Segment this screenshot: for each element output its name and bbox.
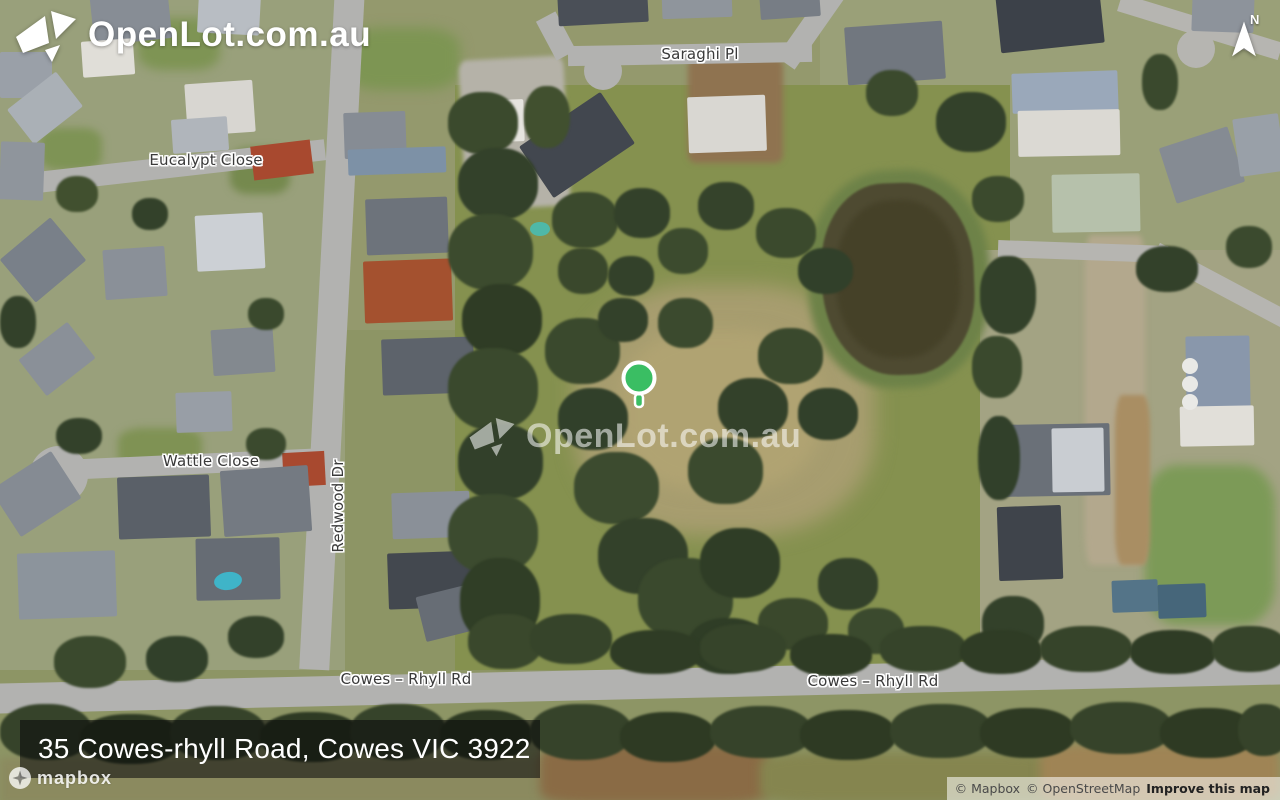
map-house bbox=[1011, 70, 1118, 114]
map-tree bbox=[658, 228, 708, 274]
map-house bbox=[1232, 113, 1280, 177]
map-tree bbox=[800, 710, 896, 760]
map-culdesac bbox=[1177, 30, 1215, 68]
map-tree bbox=[798, 248, 853, 294]
openlot-bird-icon bbox=[14, 6, 78, 64]
map-tree bbox=[960, 630, 1042, 674]
map-tree bbox=[530, 704, 632, 760]
map-tree bbox=[866, 70, 918, 116]
map-shed bbox=[997, 505, 1064, 581]
mapbox-logo[interactable]: mapbox bbox=[8, 766, 112, 790]
map-house bbox=[171, 116, 229, 154]
map-pool bbox=[530, 222, 550, 236]
mapbox-wordmark: mapbox bbox=[37, 768, 112, 789]
map-tree bbox=[530, 614, 612, 664]
map-tree bbox=[1142, 54, 1178, 110]
map-tree bbox=[710, 706, 812, 758]
map-house bbox=[662, 0, 733, 19]
map-building bbox=[1180, 405, 1255, 446]
map-tree bbox=[448, 92, 518, 154]
map-tree bbox=[700, 528, 780, 598]
address-text: 35 Cowes-rhyll Road, Cowes VIC 3922 bbox=[38, 733, 531, 765]
map-tree bbox=[558, 248, 608, 294]
map-house bbox=[1052, 173, 1141, 233]
map-house bbox=[210, 326, 275, 376]
map-tree bbox=[980, 256, 1036, 334]
attribution-bar: © Mapbox © OpenStreetMap Improve this ma… bbox=[947, 777, 1280, 800]
map-lawn bbox=[40, 128, 102, 170]
map-tree bbox=[56, 418, 102, 454]
map-house bbox=[220, 465, 312, 537]
map-tree bbox=[54, 636, 126, 688]
map-tree bbox=[1226, 226, 1272, 268]
map-tree bbox=[658, 298, 713, 348]
map-tank bbox=[1182, 394, 1198, 410]
map-tree bbox=[608, 256, 654, 296]
map-house bbox=[348, 146, 447, 175]
map-tree bbox=[790, 634, 872, 676]
map-tree bbox=[972, 336, 1022, 398]
map-dirt-track bbox=[1115, 395, 1150, 565]
map-tank bbox=[1182, 358, 1198, 374]
map-tree bbox=[1070, 702, 1172, 754]
map-tree bbox=[614, 188, 670, 238]
street-label-cowes-rhyll-east: Cowes – Rhyll Rd bbox=[807, 672, 938, 690]
map-house bbox=[17, 550, 117, 619]
street-label-redwood: Redwood Dr bbox=[329, 459, 347, 552]
map-house bbox=[0, 141, 45, 201]
map-culdesac bbox=[584, 52, 622, 90]
map-tree bbox=[0, 296, 36, 348]
map-tree bbox=[524, 86, 570, 148]
map-tree bbox=[758, 328, 823, 384]
openlot-bird-icon bbox=[468, 414, 516, 458]
mapbox-icon bbox=[8, 766, 32, 790]
satellite-map[interactable]: Saraghi Pl Eucalypt Close Wattle Close R… bbox=[0, 0, 1280, 800]
street-label-saraghi: Saraghi Pl bbox=[661, 45, 738, 63]
map-house bbox=[1051, 428, 1104, 493]
map-tree bbox=[132, 198, 168, 230]
map-tree bbox=[56, 176, 98, 212]
mapbox-copyright-link[interactable]: © Mapbox bbox=[955, 781, 1020, 796]
map-tree bbox=[880, 626, 966, 672]
map-shed bbox=[1157, 583, 1206, 619]
map-tree bbox=[228, 616, 284, 658]
map-tree bbox=[448, 214, 533, 290]
openlot-logo: OpenLot.com.au bbox=[14, 6, 371, 64]
property-pin-marker[interactable] bbox=[616, 358, 662, 416]
map-tree bbox=[1212, 626, 1280, 672]
map-tree bbox=[598, 298, 648, 342]
map-house bbox=[102, 246, 167, 300]
street-label-wattle: Wattle Close bbox=[163, 452, 259, 470]
map-tree bbox=[1136, 246, 1198, 292]
map-tree bbox=[798, 388, 858, 440]
map-tree bbox=[980, 708, 1076, 758]
osm-copyright-link[interactable]: © OpenStreetMap bbox=[1026, 781, 1140, 796]
openlot-logo-text: OpenLot.com.au bbox=[88, 15, 371, 55]
map-tank bbox=[1182, 376, 1198, 392]
map-tree bbox=[818, 558, 878, 610]
map-tree bbox=[146, 636, 208, 682]
map-tree bbox=[458, 148, 538, 220]
map-tree bbox=[620, 712, 716, 762]
map-tree bbox=[1238, 704, 1280, 756]
map-house bbox=[117, 474, 211, 539]
map-tree bbox=[1040, 626, 1132, 672]
map-pond bbox=[833, 198, 962, 360]
map-concrete-pad bbox=[687, 95, 767, 154]
map-tree bbox=[698, 182, 754, 230]
map-shed bbox=[1111, 579, 1158, 613]
map-house bbox=[1018, 109, 1121, 157]
map-tree bbox=[936, 92, 1006, 152]
map-house bbox=[195, 212, 266, 271]
map-tree bbox=[248, 298, 284, 330]
north-compass: N bbox=[1222, 6, 1272, 60]
openlot-watermark: OpenLot.com.au bbox=[468, 414, 801, 458]
map-tree bbox=[574, 452, 659, 524]
map-tree bbox=[890, 704, 992, 758]
map-house bbox=[175, 391, 232, 433]
map-house bbox=[365, 197, 449, 256]
map-tree bbox=[700, 624, 786, 672]
map-tree bbox=[1130, 630, 1216, 674]
map-tree bbox=[756, 208, 816, 258]
north-label: N bbox=[1250, 12, 1259, 27]
map-tree bbox=[552, 192, 618, 248]
improve-map-link[interactable]: Improve this map bbox=[1146, 781, 1270, 796]
map-tree bbox=[978, 416, 1020, 500]
map-tree bbox=[972, 176, 1024, 222]
map-tree bbox=[462, 284, 542, 356]
street-label-cowes-rhyll-west: Cowes – Rhyll Rd bbox=[340, 670, 471, 688]
map-house bbox=[363, 258, 453, 323]
map-tree bbox=[610, 630, 702, 674]
street-label-eucalypt: Eucalypt Close bbox=[149, 151, 262, 169]
map-house bbox=[195, 537, 280, 600]
watermark-text: OpenLot.com.au bbox=[526, 417, 801, 456]
